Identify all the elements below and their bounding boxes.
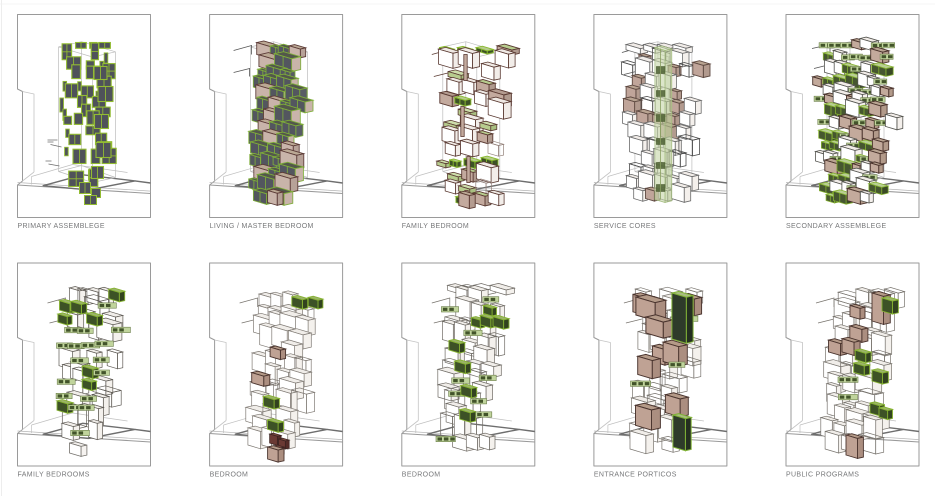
- svg-text:FAMILY BEDROOM: FAMILY BEDROOM: [402, 223, 469, 230]
- svg-text:PRIMARY ASSEMBLEGE: PRIMARY ASSEMBLEGE: [18, 223, 105, 230]
- svg-text:BEDROOM: BEDROOM: [402, 472, 441, 479]
- svg-text:ENTRANCE PORTICOS: ENTRANCE PORTICOS: [594, 472, 677, 479]
- svg-text:SERVICE CORES: SERVICE CORES: [594, 223, 656, 230]
- svg-text:FAMILY BEDROOMS: FAMILY BEDROOMS: [18, 472, 90, 479]
- svg-text:SECONDARY ASSEMBLEGE: SECONDARY ASSEMBLEGE: [786, 223, 887, 230]
- svg-text:BEDROOM: BEDROOM: [210, 472, 249, 479]
- svg-text:LIVING / MASTER BEDROOM: LIVING / MASTER BEDROOM: [210, 223, 314, 230]
- svg-text:PUBLIC PROGRAMS: PUBLIC PROGRAMS: [786, 472, 859, 479]
